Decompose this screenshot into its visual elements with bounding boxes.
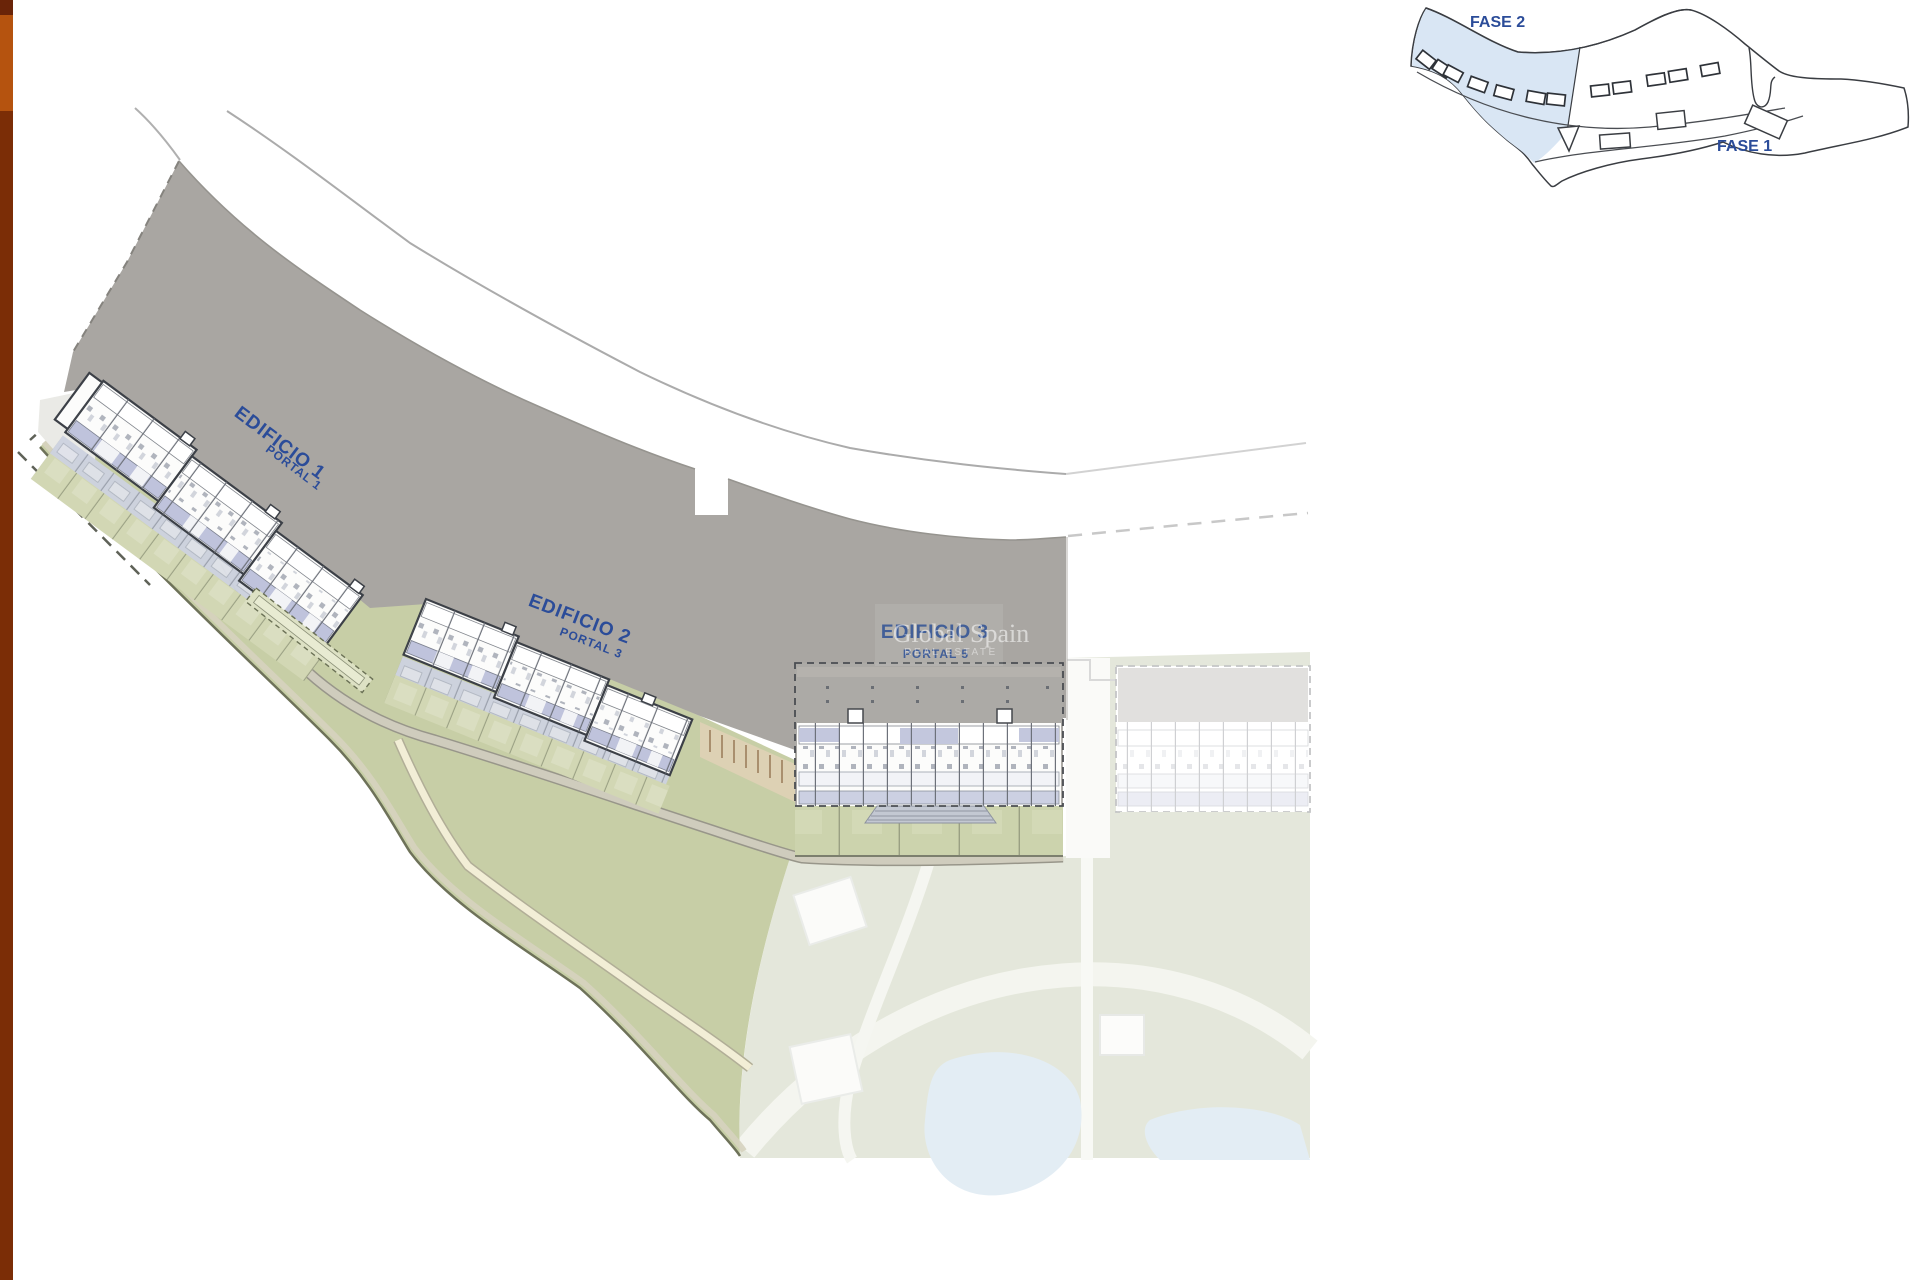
svg-text:Global Spain: Global Spain [893,619,1030,648]
svg-text:REAL ESTATE: REAL ESTATE [904,647,997,658]
svg-text:FASE 1: FASE 1 [1717,138,1772,155]
svg-text:FASE 2: FASE 2 [1470,14,1525,31]
